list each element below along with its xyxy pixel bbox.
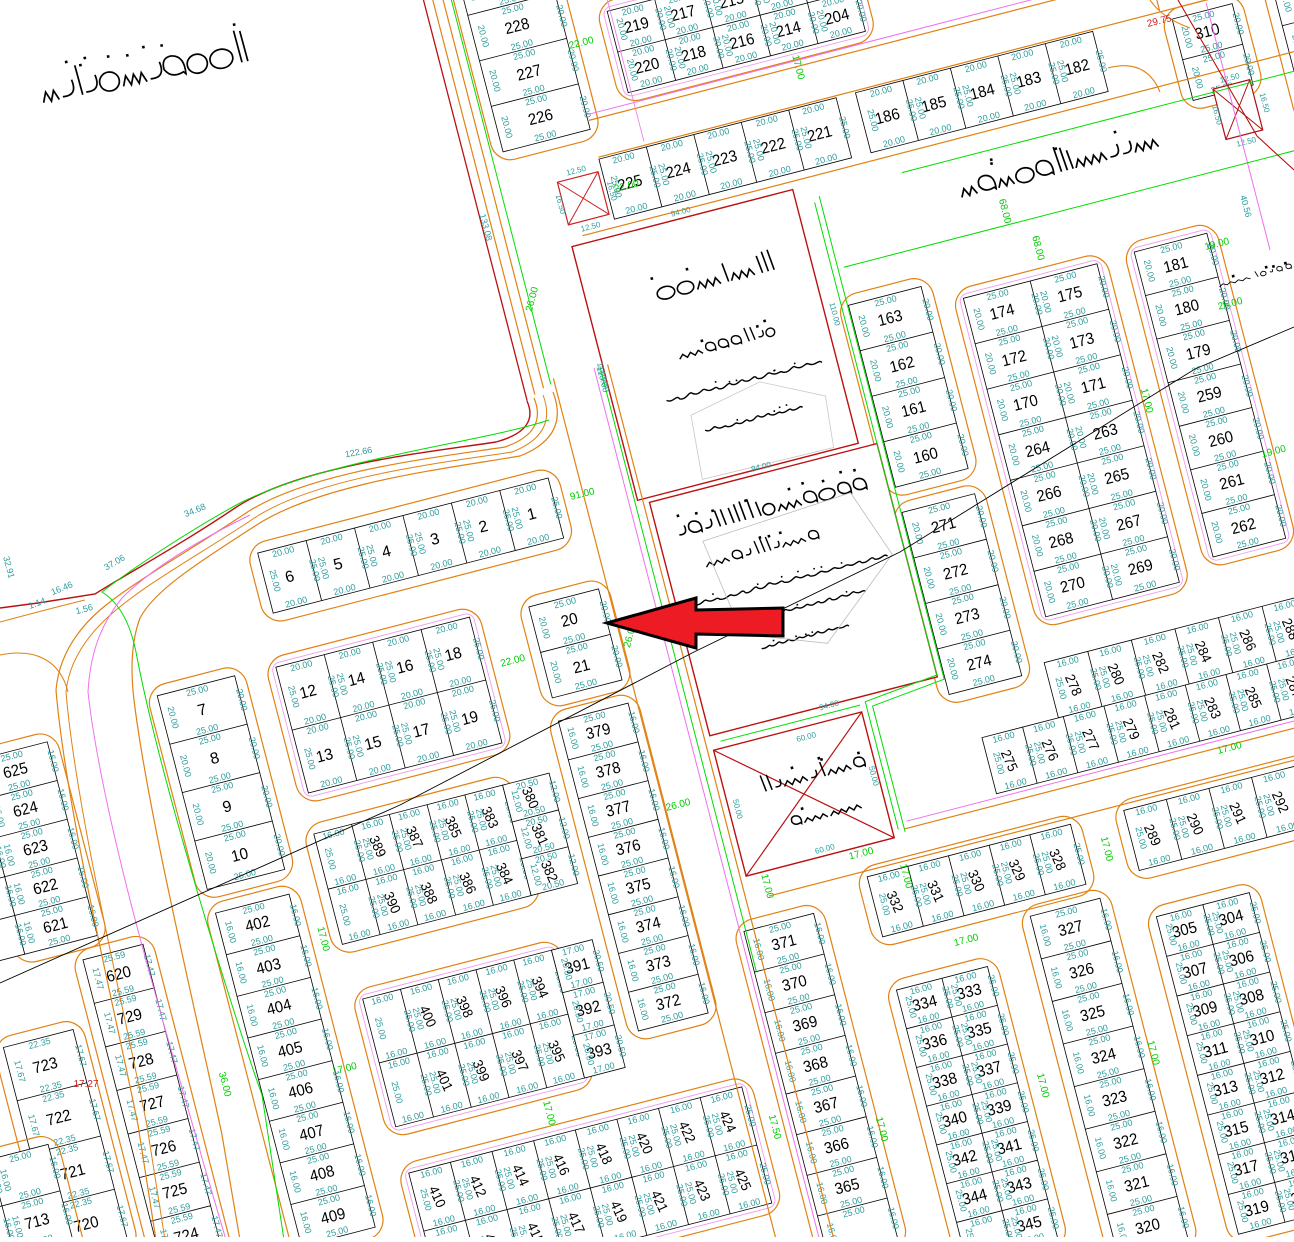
svg-text:17.27: 17.27: [73, 1079, 98, 1090]
